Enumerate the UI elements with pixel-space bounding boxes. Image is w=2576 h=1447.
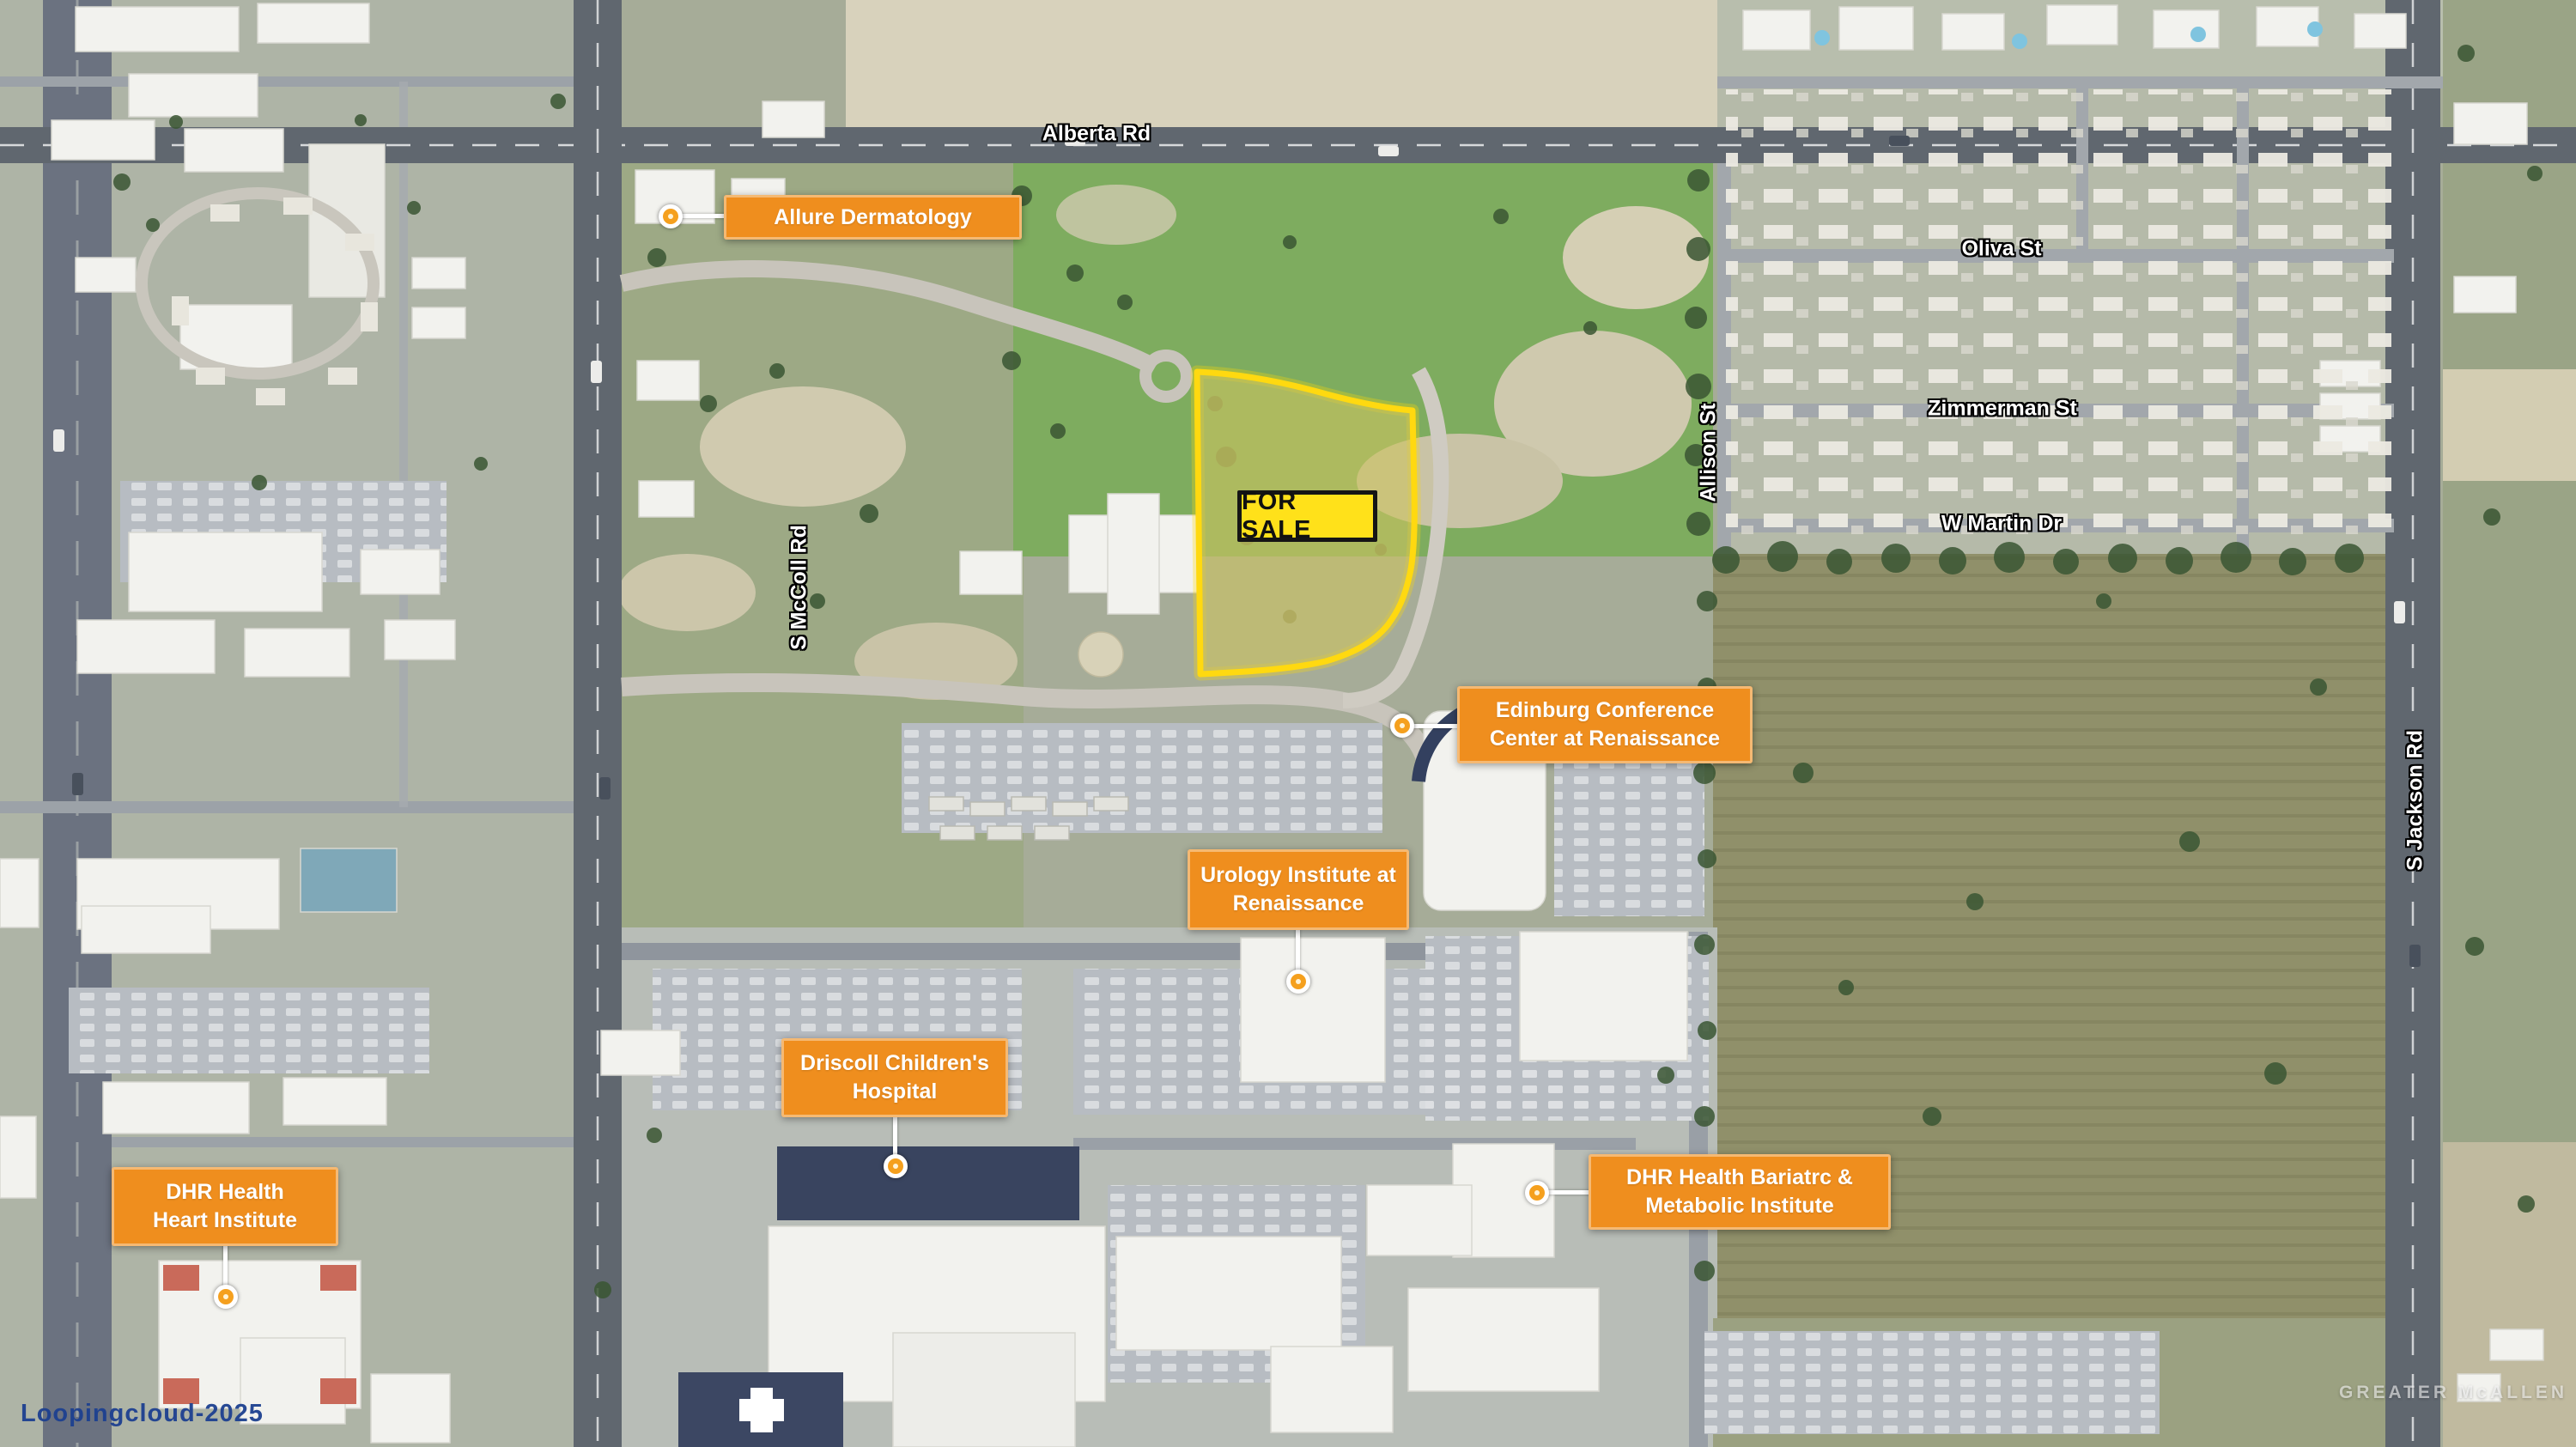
street-label-zimmerman-st: Zimmerman St [1928,397,2077,422]
callout-label: Center at Renaissance [1490,725,1720,753]
street-label-alberta-rd: Alberta Rd [1042,122,1151,147]
callout-dot [884,1154,908,1178]
callout-dot [1286,970,1310,994]
street-label-s-jackson-rd: S Jackson Rd [2403,730,2428,871]
callout-allure-dermatology: Allure Dermatology [724,195,1022,240]
callout-dot [659,204,683,228]
callout-edinburg-conference-center: Edinburg Conference Center at Renaissanc… [1457,686,1753,763]
street-label-s-mccoll-rd: S McColl Rd [787,525,812,650]
street-label-allison-st: Allison St [1697,403,1722,502]
street-label-oliva-st: Oliva St [1961,237,2041,262]
callout-label: Driscoll Children's [800,1049,989,1078]
callout-label: DHR Health [166,1178,284,1207]
callout-label: Metabolic Institute [1645,1192,1833,1220]
callout-connector [1413,724,1460,728]
callout-connector [223,1244,228,1287]
callout-dhr-health-heart-institute: DHR Health Heart Institute [112,1167,338,1246]
callout-label: Heart Institute [153,1207,297,1235]
callout-dhr-health-bariatric-metabolic-institute: DHR Health Bariatrc & Metabolic Institut… [1589,1154,1891,1230]
street-label-w-martin-dr: W Martin Dr [1941,512,2062,537]
callout-connector [1547,1190,1591,1195]
callout-label: Renaissance [1233,890,1364,918]
callout-driscoll-childrens-hospital: Driscoll Children's Hospital [781,1038,1008,1117]
watermark-loopingcloud: Loopingcloud-2025 [21,1400,264,1428]
callout-label: Urology Institute at [1200,861,1396,890]
callout-label: Hospital [853,1078,938,1106]
for-sale-badge: FOR SALE [1237,490,1377,542]
callout-connector [680,214,726,218]
callout-dot [214,1285,238,1309]
callout-label: Edinburg Conference [1496,696,1714,725]
callout-connector [893,1116,897,1157]
callout-label: DHR Health Bariatrc & [1626,1164,1853,1192]
callout-connector [1296,928,1300,971]
watermark-greater-mcallen: GREATER McALLEN [2339,1383,2567,1403]
callout-dot [1525,1181,1549,1205]
callout-label: Allure Dermatology [774,204,972,232]
satellite-map-background [0,0,2576,1447]
aerial-map: FOR SALE Allure Dermatology Edinburg Con… [0,0,2576,1447]
callout-urology-institute: Urology Institute at Renaissance [1188,849,1409,930]
callout-dot [1390,714,1414,738]
